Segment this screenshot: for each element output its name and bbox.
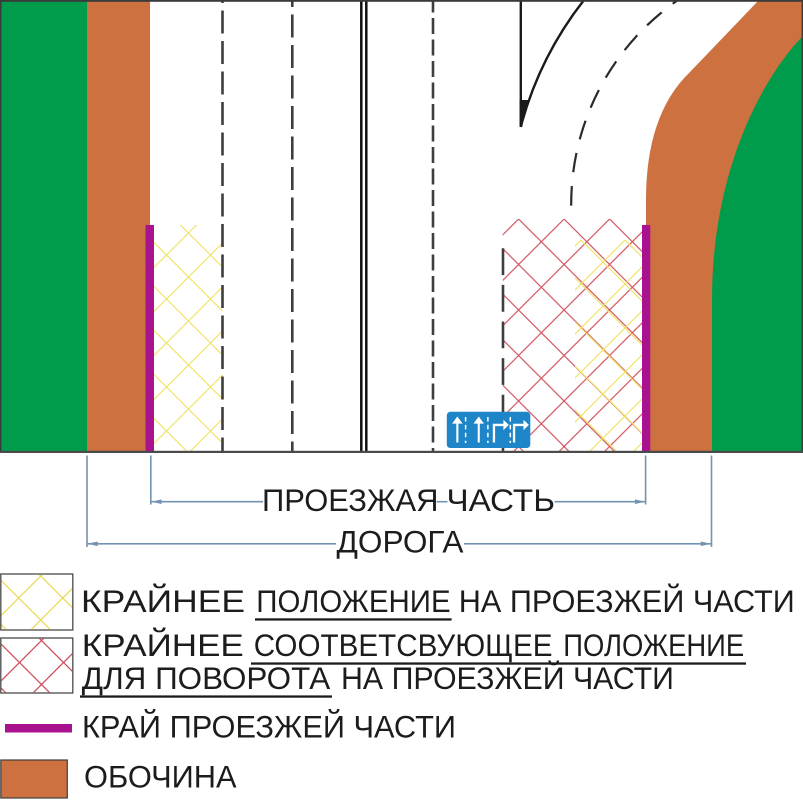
svg-text:КРАЙНЕЕ: КРАЙНЕЕ: [82, 627, 244, 663]
svg-text:НА ПРОЕЗЖЕЙ ЧАСТИ: НА ПРОЕЗЖЕЙ ЧАСТИ: [459, 583, 795, 619]
svg-text:КРАЙНЕЕ: КРАЙНЕЕ: [81, 583, 245, 619]
svg-text:КРАЙ ПРОЕЗЖЕЙ ЧАСТИ: КРАЙ ПРОЕЗЖЕЙ ЧАСТИ: [82, 709, 456, 745]
svg-text:ДОРОГА: ДОРОГА: [337, 524, 465, 560]
svg-text:ПОЛОЖЕНИЕ: ПОЛОЖЕНИЕ: [563, 627, 744, 663]
svg-text:СООТВЕТСВУЮЩЕЕ: СООТВЕТСВУЮЩЕЕ: [254, 627, 553, 663]
svg-text:НА ПРОЕЗЖЕЙ ЧАСТИ: НА ПРОЕЗЖЕЙ ЧАСТИ: [341, 660, 674, 696]
svg-text:ДЛЯ ПОВОРОТА: ДЛЯ ПОВОРОТА: [82, 660, 331, 696]
svg-text:ОБОЧИНА: ОБОЧИНА: [84, 759, 237, 795]
svg-text:ПРОЕЗЖАЯ: ПРОЕЗЖАЯ: [262, 482, 439, 518]
svg-text:ЧАСТЬ: ЧАСТЬ: [447, 482, 556, 518]
svg-text:ПОЛОЖЕНИЕ: ПОЛОЖЕНИЕ: [256, 583, 450, 619]
